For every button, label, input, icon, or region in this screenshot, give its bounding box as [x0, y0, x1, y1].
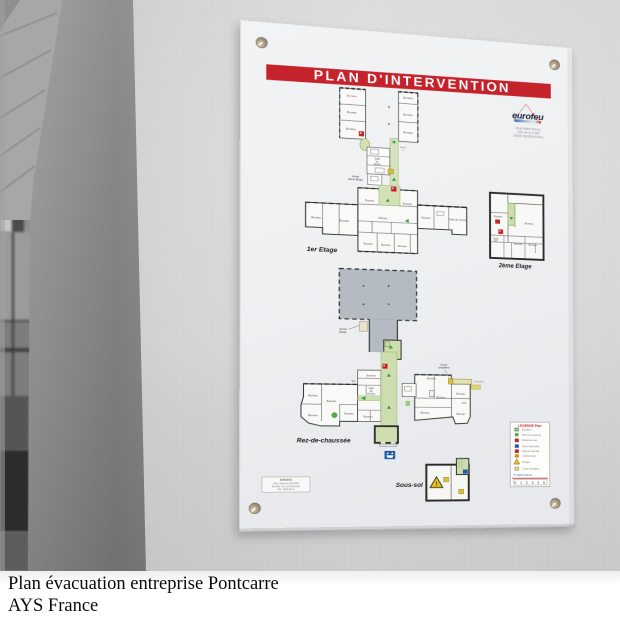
svg-text:!: !	[435, 481, 437, 487]
svg-text:chaufferie: chaufferie	[438, 366, 450, 370]
svg-text:Rez-de-chaussée: Rez-de-chaussée	[297, 438, 351, 445]
svg-text:Chaudière: Chaudière	[474, 381, 485, 384]
svg-text:Bureau: Bureau	[437, 395, 446, 399]
svg-text:Etage: Etage	[339, 330, 347, 334]
svg-text:Bureau: Bureau	[525, 222, 534, 226]
svg-text:Tech: Tech	[461, 402, 466, 405]
svg-text:2ème Etage: 2ème Etage	[348, 177, 363, 182]
svg-text:Bureau: Bureau	[364, 242, 373, 246]
svg-text:Escaliers: Escaliers	[522, 428, 532, 432]
svg-text:Bureau: Bureau	[365, 198, 374, 202]
svg-text:Extincteur eau: Extincteur eau	[522, 439, 538, 443]
svg-text:Bureau: Bureau	[364, 415, 373, 419]
svg-text:Local technique: Local technique	[522, 467, 539, 471]
svg-text:Photoc.: Photoc.	[378, 216, 388, 220]
svg-text:Bureau: Bureau	[529, 243, 538, 247]
svg-text:1er Etage: 1er Etage	[307, 246, 338, 254]
svg-text:info: info	[494, 239, 498, 243]
svg-text:Bureau: Bureau	[308, 393, 318, 397]
svg-text:pause: pause	[374, 163, 382, 166]
svg-text:Bureau: Bureau	[311, 215, 321, 219]
svg-text:Bureau: Bureau	[344, 412, 354, 416]
svg-text:Bureau: Bureau	[427, 377, 436, 381]
svg-text:Bureau: Bureau	[420, 411, 429, 415]
svg-text:Bureau: Bureau	[327, 399, 337, 403]
svg-text:Sous-sol: Sous-sol	[396, 482, 423, 489]
svg-text:Danger: Danger	[522, 460, 530, 464]
svg-text:Bureau: Bureau	[456, 412, 465, 416]
svg-text:Bureau: Bureau	[494, 214, 503, 218]
svg-text:Bureau: Bureau	[403, 96, 413, 100]
svg-text:Point de rassemb.: Point de rassemb.	[522, 433, 541, 437]
svg-text:Bureau: Bureau	[308, 413, 318, 417]
svg-text:Sens évacuation: Sens évacuation	[522, 444, 540, 448]
svg-text:Bureau: Bureau	[403, 202, 412, 206]
svg-text:Bureau: Bureau	[340, 219, 350, 223]
svg-text:Bureau: Bureau	[422, 216, 431, 220]
svg-text:Bureau: Bureau	[403, 113, 413, 117]
svg-text:Réf. 2809-EVC: Réf. 2809-EVC	[278, 489, 295, 492]
svg-text:LEGENDE Plan: LEGENDE Plan	[518, 424, 541, 428]
svg-text:Bureau: Bureau	[381, 243, 390, 247]
svg-text:Bureau: Bureau	[367, 373, 376, 377]
svg-text:Bureau: Bureau	[403, 130, 413, 134]
svg-text:Toil.: Toil.	[351, 380, 356, 383]
svg-text:Bureau: Bureau	[456, 392, 465, 396]
svg-text:Bureau: Bureau	[514, 242, 523, 246]
svg-text:Bureau: Bureau	[346, 127, 356, 131]
svg-text:2ème Etage: 2ème Etage	[498, 263, 532, 271]
svg-text:Bureau: Bureau	[347, 94, 357, 98]
svg-text:Alarme incendie: Alarme incendie	[522, 449, 539, 453]
svg-text:réunion: réunion	[367, 393, 376, 396]
svg-text:N° appel urgence: N° appel urgence	[514, 473, 533, 477]
svg-text:Bureau: Bureau	[398, 244, 407, 248]
svg-text:Bureau: Bureau	[347, 110, 357, 114]
svg-text:0 1 2 3 4 5: 0 1 2 3 4 5	[514, 481, 546, 485]
svg-text:Coupure gaz: Coupure gaz	[522, 454, 536, 458]
